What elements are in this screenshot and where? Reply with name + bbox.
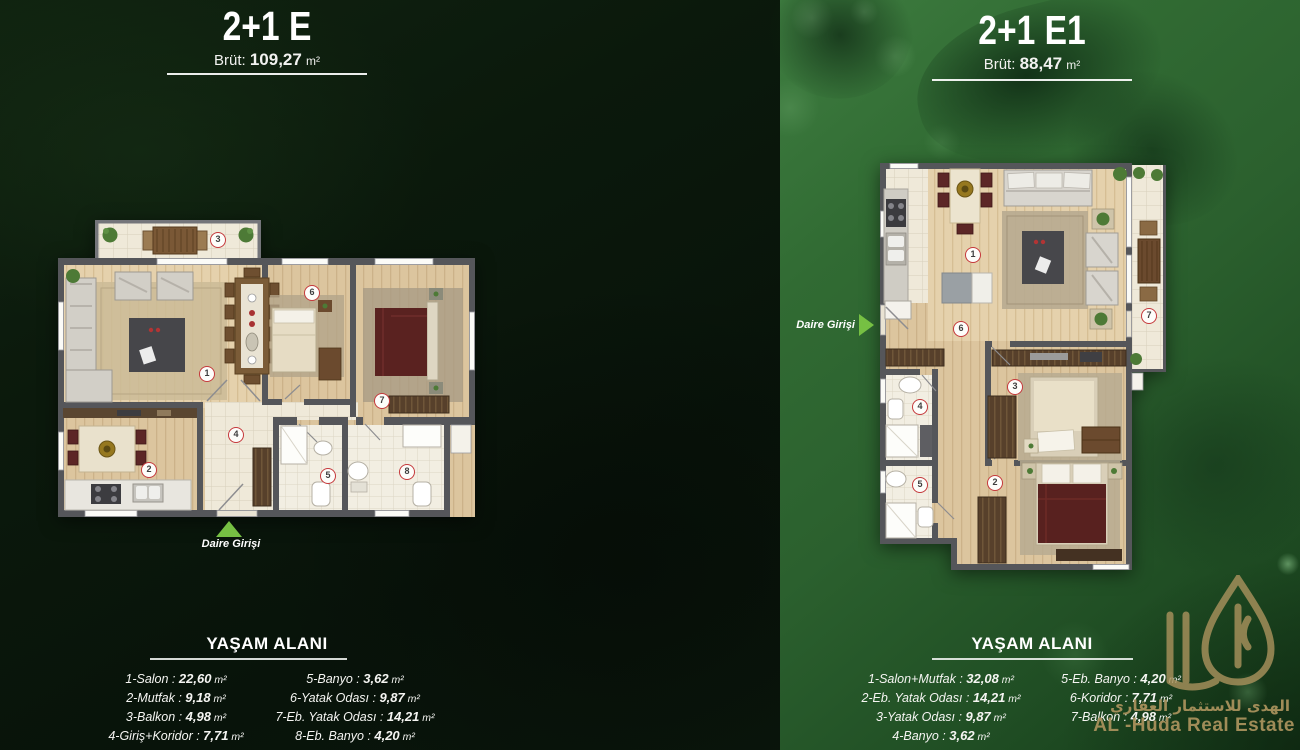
heading-rule	[150, 658, 347, 660]
room-marker: 6	[953, 321, 969, 337]
room-area-item: 7-Eb. Yatak Odası : 14,21 m²	[275, 708, 434, 727]
left-brut-line: Brüt: 109,27 m²	[213, 50, 321, 70]
room-area-list: 5-Banyo : 3,62 m²6-Yatak Odası : 9,87 m²…	[275, 670, 434, 746]
room-marker: 3	[210, 232, 226, 248]
room-marker: 7	[1141, 308, 1157, 324]
room-area-item: 2-Eb. Yatak Odası : 14,21 m²	[861, 689, 1020, 708]
room-marker: 5	[912, 477, 928, 493]
brut-value: 109,27	[250, 50, 302, 69]
room-area-item: 4-Banyo : 3,62 m²	[861, 727, 1020, 746]
right-plan-title: 2+1 E1	[978, 10, 1085, 51]
room-area-item: 6-Yatak Odası : 9,87 m²	[275, 689, 434, 708]
living-area-heading: YAŞAM ALANI	[971, 634, 1092, 654]
room-area-item: 3-Balkon : 4,98 m²	[108, 708, 243, 727]
room-area-item: 3-Yatak Odası : 9,87 m²	[861, 708, 1020, 727]
room-marker: 3	[1007, 379, 1023, 395]
room-area-list: 1-Salon+Mutfak : 32,08 m²2-Eb. Yatak Oda…	[861, 670, 1020, 746]
bedroom6-group	[270, 295, 344, 380]
room-marker: 1	[965, 247, 981, 263]
entrance-arrow-icon	[859, 314, 874, 336]
watermark-latin-text: AL -Huda Real Estate	[1093, 715, 1295, 737]
entrance-label: Daire Girişi	[202, 538, 261, 550]
brochure-canvas: 2+1 E Brüt: 109,27 m² 2+1 E1 Brüt: 88,47…	[0, 0, 1300, 750]
room-area-item: 5-Banyo : 3,62 m²	[275, 670, 434, 689]
room-area-list: 1-Salon : 22,60 m²2-Mutfak : 9,18 m²3-Ba…	[108, 670, 243, 746]
room-marker: 4	[228, 427, 244, 443]
right-brut-line: Brüt: 88,47 m²	[966, 54, 1097, 74]
room-marker: 8	[399, 464, 415, 480]
brut-unit: m²	[1066, 58, 1080, 72]
kitchen-group	[884, 189, 911, 319]
room-marker: 2	[987, 475, 1003, 491]
room-marker: 5	[320, 468, 336, 484]
left-title-rule	[167, 73, 367, 75]
salon-group	[66, 268, 279, 402]
room-marker: 2	[141, 462, 157, 478]
watermark: الهدى للاستثمار العقاري AL -Huda Real Es…	[1080, 575, 1298, 745]
room-marker: 7	[374, 393, 390, 409]
brut-label: Brüt:	[214, 52, 246, 69]
brut-label: Brüt:	[984, 56, 1016, 73]
entrance-arrow-icon	[216, 521, 242, 537]
living-area-heading: YAŞAM ALANI	[206, 634, 327, 654]
entrance-label: Daire Girişi	[796, 319, 855, 331]
watermark-arabic-text: الهدى للاستثمار العقاري	[1110, 697, 1290, 715]
left-title-block: 2+1 E Brüt: 109,27 m²	[213, 6, 321, 70]
room-area-item: 8-Eb. Banyo : 4,20 m²	[275, 727, 434, 746]
room-marker: 1	[199, 366, 215, 382]
floor-plan-right	[880, 163, 1168, 570]
company-logo-icon	[1160, 575, 1284, 695]
right-title-block: 2+1 E1 Brüt: 88,47 m²	[966, 10, 1097, 74]
room-area-item: 1-Salon+Mutfak : 32,08 m²	[861, 670, 1020, 689]
left-plan-title: 2+1 E	[223, 6, 312, 47]
room-area-item: 1-Salon : 22,60 m²	[108, 670, 243, 689]
brut-unit: m²	[306, 54, 320, 68]
room-marker: 6	[304, 285, 320, 301]
room-area-item: 2-Mutfak : 9,18 m²	[108, 689, 243, 708]
brut-value: 88,47	[1020, 54, 1063, 73]
room-area-item: 4-Giriş+Koridor : 7,71 m²	[108, 727, 243, 746]
right-title-rule	[932, 79, 1132, 81]
room-marker: 4	[912, 399, 928, 415]
